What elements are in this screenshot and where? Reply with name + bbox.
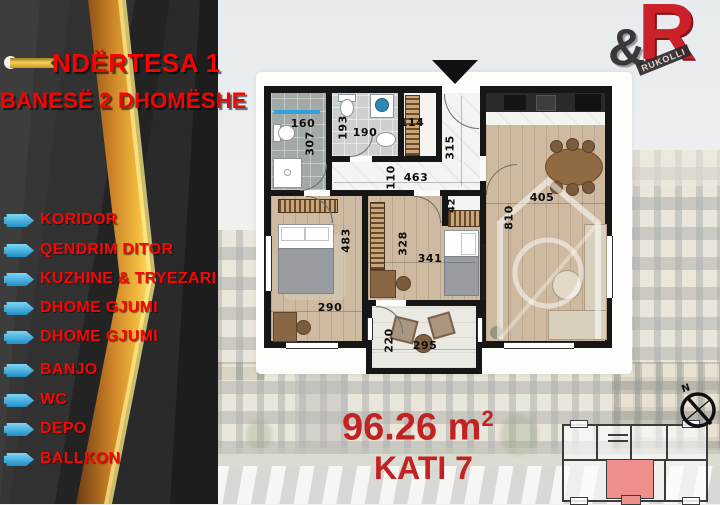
keyplan-stairs [608,434,628,436]
kitchen-backsplash [486,112,605,125]
arrow-bullet-icon [4,331,34,344]
room-list-item: DHOME GJUMI [2,323,218,352]
wall [326,93,332,190]
entrance-arrow-icon [432,60,478,84]
washing-machine-door [375,98,389,112]
area-value: 96.26 [342,407,437,449]
flyer: { "sidebar": { "title": "NDËRTESA 1", "s… [0,0,720,504]
pillow [461,233,476,255]
building-title: NDËRTESA 1 [52,48,227,79]
ribbon-icon [10,58,56,68]
pillow [281,227,305,241]
wardrobe [370,202,385,270]
desk [273,312,297,342]
room-list-item: KORIDOR [2,206,218,235]
dim-label: 114 [395,116,429,129]
balcony-door-gap [376,300,406,306]
kitchen-appliance [575,94,601,111]
keyplan-highlighted-unit [606,459,654,499]
door-gap [414,190,440,196]
balcony-rail [366,306,372,374]
desk-chair [396,276,411,291]
arrow-bullet-icon [4,394,34,407]
arrow-bullet-icon [4,273,34,286]
room-list-item: DEPO [2,415,218,444]
room-label: QENDRIM DITOR [40,241,173,259]
pillow [305,227,329,241]
kitchen-sink [536,95,556,111]
room-label: WC [40,391,67,409]
room-label: KUZHINE & TRYEZARI [40,270,216,288]
balcony-rail [366,368,482,374]
keyplan-wall [630,426,632,459]
dim-label: 315 [444,131,457,165]
cooktop [504,95,526,110]
door-gap [350,156,372,162]
blanket [278,248,334,294]
dim-label: 483 [340,224,353,258]
dim-label: 295 [408,339,442,352]
dim-label: 42 [447,189,458,223]
arrow-bullet-icon [4,302,34,315]
compass-icon: N [674,380,720,432]
room-label: BALLKON [40,450,120,468]
room-list-item: WC [2,386,218,415]
floorplan: 160 307 193 190 114 315 110 463 42 405 8… [264,86,612,378]
keyplan-wall [666,426,668,459]
arrow-bullet-icon [4,214,34,227]
keyplan-wall [596,426,598,459]
room-list-item: DHOME GJUMI [2,294,218,323]
dim-label: 307 [304,127,317,161]
wall [264,86,612,93]
watermark-logo [480,141,612,346]
dim-label: 463 [399,171,433,184]
entrance-door-gap [442,86,480,93]
sidebar: NDËRTESA 1 BANESË 2 DHOMËSHE KORIDOR QEN… [0,0,218,504]
keyplan-stairs [608,440,628,442]
arrow-bullet-icon [4,453,34,466]
dim-label: 405 [525,191,559,204]
room-label: DEPO [40,420,87,438]
arrow-bullet-icon [4,423,34,436]
desk-chair [296,320,311,335]
compass-north-label: N [680,382,691,395]
towel-rail [274,110,320,114]
dim-label: 328 [397,227,410,261]
dim-label: 810 [503,201,516,235]
site-key-plan [562,424,708,502]
floor-level-text: KATI 7 [374,450,534,487]
area-exponent: 2 [481,406,493,431]
wall [436,93,442,156]
keyplan-wall [664,461,666,500]
arrow-bullet-icon [4,364,34,377]
arrow-bullet-icon [4,244,34,257]
room-list-item: BANJO [2,356,218,385]
dim-label: 190 [348,126,382,139]
background-tree [246,420,272,450]
wall [264,86,271,348]
apartment-subtitle: BANESË 2 DHOMËSHE [0,88,230,114]
room-label: BANJO [40,361,98,379]
room-list-item: BALLKON [2,445,218,474]
window [265,236,272,291]
dim-label: 341 [413,252,447,265]
dim-label: 110 [385,161,398,195]
room-label: DHOME GJUMI [40,299,158,317]
room-list-item: QENDRIM DITOR [2,236,218,265]
keyplan-balcony-tab [570,420,588,428]
balcony-window [367,318,373,340]
dim-label: 290 [313,301,347,314]
dim-label: 220 [383,324,396,358]
room-list-item: KUZHINE & TRYEZARI [2,265,218,294]
window [286,342,338,349]
room-label: DHOME GJUMI [40,328,158,346]
area-text: 96.26 m2 [342,406,542,450]
shower-drain [284,169,291,176]
area-unit: m [448,407,482,449]
room-label: KORIDOR [40,211,118,229]
desk [370,270,396,298]
